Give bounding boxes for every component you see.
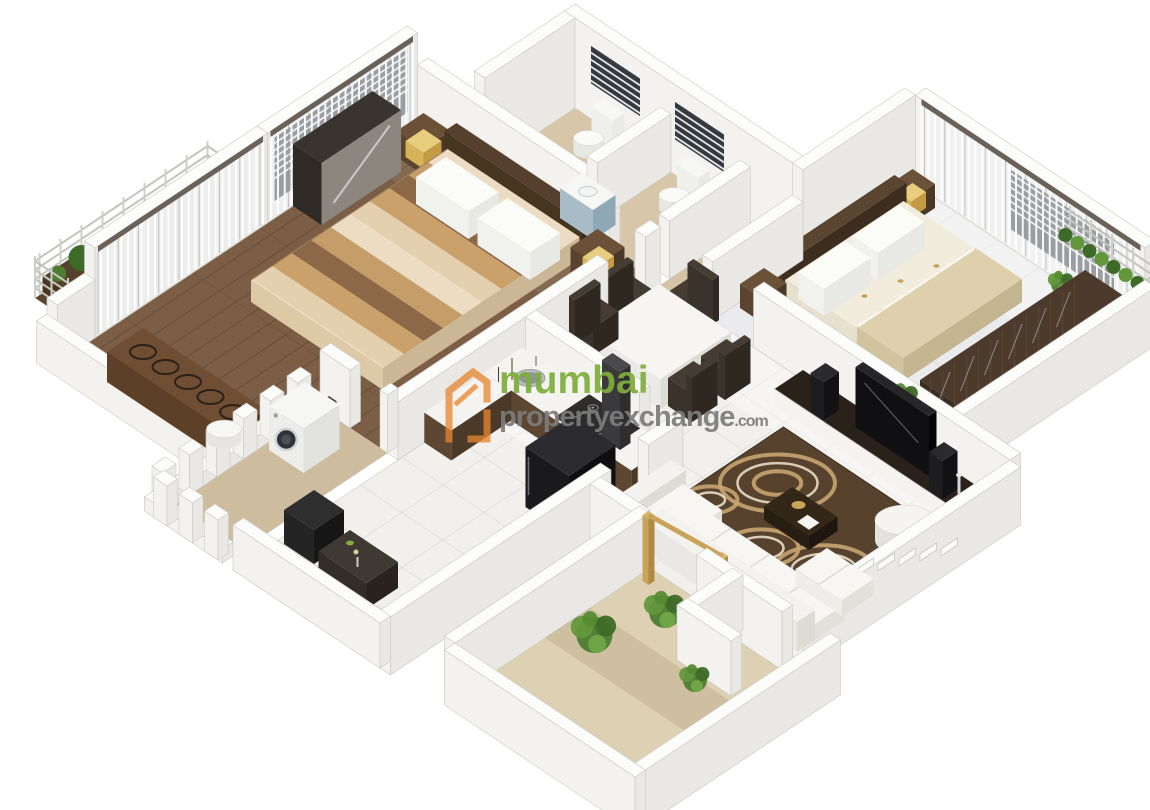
round-stool xyxy=(207,420,242,448)
wall xyxy=(380,383,398,453)
floorplan-3d-render: mumbai propertyexchange.com xyxy=(0,0,1150,810)
isometric-floorplan-scene xyxy=(0,0,1150,810)
chimney-hood xyxy=(602,353,631,450)
speaker xyxy=(929,442,958,499)
speaker xyxy=(811,363,840,420)
